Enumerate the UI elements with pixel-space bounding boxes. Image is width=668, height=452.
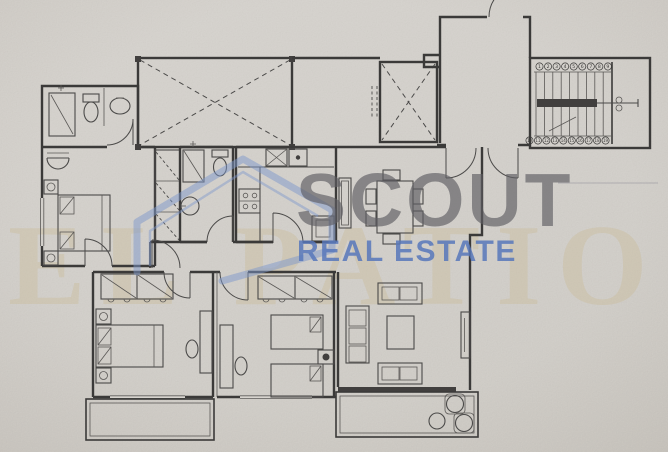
- step-number: 17: [586, 138, 592, 143]
- step-number: 16: [578, 138, 584, 143]
- step-number: 10: [527, 138, 533, 143]
- step-number: 4: [564, 64, 567, 70]
- step-number: 18: [595, 138, 601, 143]
- handrail: [537, 99, 597, 107]
- brand-text: SCOUT: [296, 158, 574, 242]
- step-number: 2: [547, 64, 550, 70]
- step-number: 13: [552, 138, 558, 143]
- floor-plan-image: EL PATIO: [0, 0, 668, 452]
- step-number: 8: [598, 64, 601, 70]
- step-number: 6: [581, 64, 584, 70]
- step-number: 3: [555, 64, 558, 70]
- step-number: 7: [589, 64, 592, 70]
- corner-post: [135, 56, 141, 62]
- step-number: 15: [569, 138, 575, 143]
- nightstand-lamp: [323, 354, 330, 361]
- step-number: 9: [606, 64, 609, 70]
- corner-post: [135, 144, 141, 150]
- step-number: 11: [535, 138, 541, 143]
- tagline-text: REAL ESTATE: [297, 235, 517, 268]
- step-number: 14: [561, 138, 567, 143]
- step-number: 1: [538, 64, 541, 70]
- step-number: 5: [572, 64, 575, 70]
- step-number: 12: [544, 138, 550, 143]
- step-number: 19: [603, 138, 609, 143]
